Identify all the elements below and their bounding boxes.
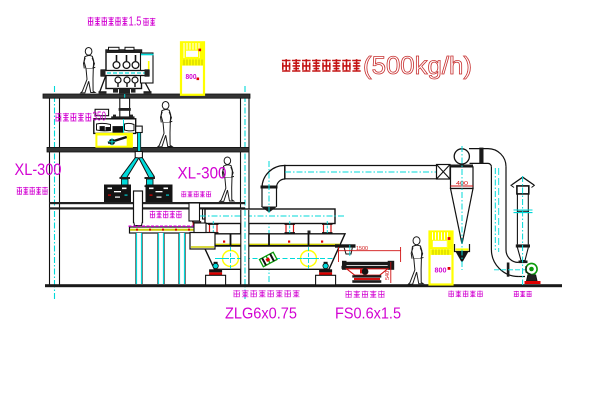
svg-text:800: 800 xyxy=(435,266,447,275)
svg-text:1500: 1500 xyxy=(356,246,368,252)
svg-text:XL-300: XL-300 xyxy=(15,161,62,179)
svg-text:800: 800 xyxy=(186,72,197,81)
svg-text:(500kg/h): (500kg/h) xyxy=(363,52,472,80)
svg-text:XL-300: XL-300 xyxy=(178,164,227,183)
svg-text:ZLG6x0.75: ZLG6x0.75 xyxy=(225,306,297,323)
svg-text:1.5: 1.5 xyxy=(129,14,142,29)
svg-text:FS0.6x1.5: FS0.6x1.5 xyxy=(335,306,401,323)
svg-text:350: 350 xyxy=(93,110,107,124)
svg-text:540: 540 xyxy=(385,271,391,280)
